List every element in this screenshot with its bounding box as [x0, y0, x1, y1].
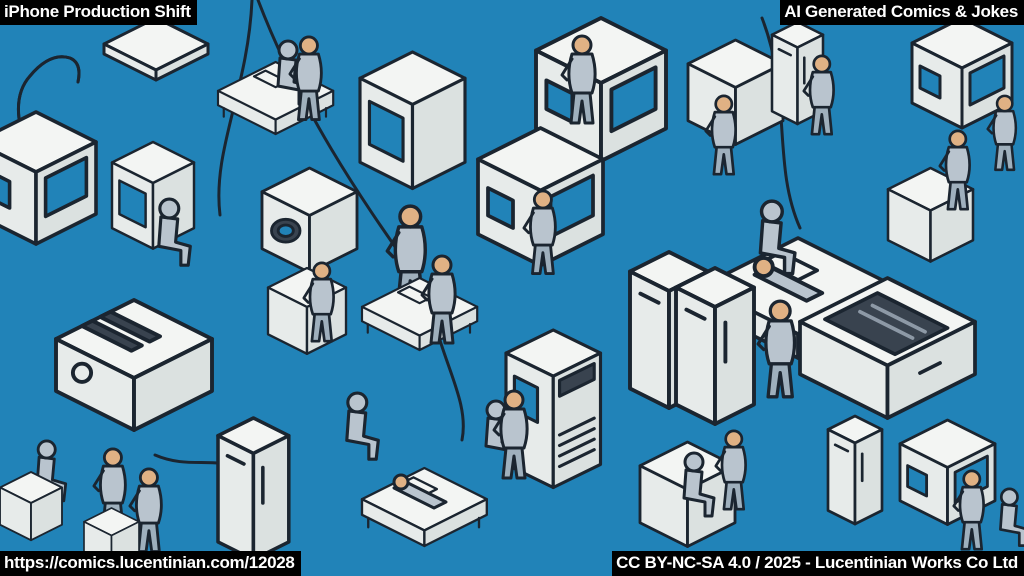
machine-oval: [262, 168, 357, 273]
machine-tall: [828, 416, 882, 524]
caption-url: https://comics.lucentinian.com/12028: [0, 551, 301, 576]
worker-sit: [1000, 489, 1024, 546]
caption-series: AI Generated Comics & Jokes: [780, 0, 1024, 25]
panel: [104, 18, 208, 80]
machine-box: [268, 268, 346, 354]
worker-sit: [347, 393, 379, 459]
machine-tall: [676, 268, 754, 424]
machine-box: [0, 472, 62, 540]
machine-monitor: [112, 142, 194, 249]
caption-license: CC BY-NC-SA 4.0 / 2025 - Lucentinian Wor…: [612, 551, 1024, 576]
machine-scene: [0, 18, 1024, 569]
machine-bed: [362, 468, 487, 546]
comic-page: iPhone Production Shift AI Generated Com…: [0, 0, 1024, 576]
machine-tall: [218, 418, 289, 560]
machine-window: [0, 112, 96, 244]
caption-title: iPhone Production Shift: [0, 0, 197, 25]
machine-monitor: [360, 52, 465, 189]
machine-bed: [362, 278, 477, 350]
machine-toaster: [56, 300, 212, 430]
comic-illustration: [0, 0, 1024, 576]
